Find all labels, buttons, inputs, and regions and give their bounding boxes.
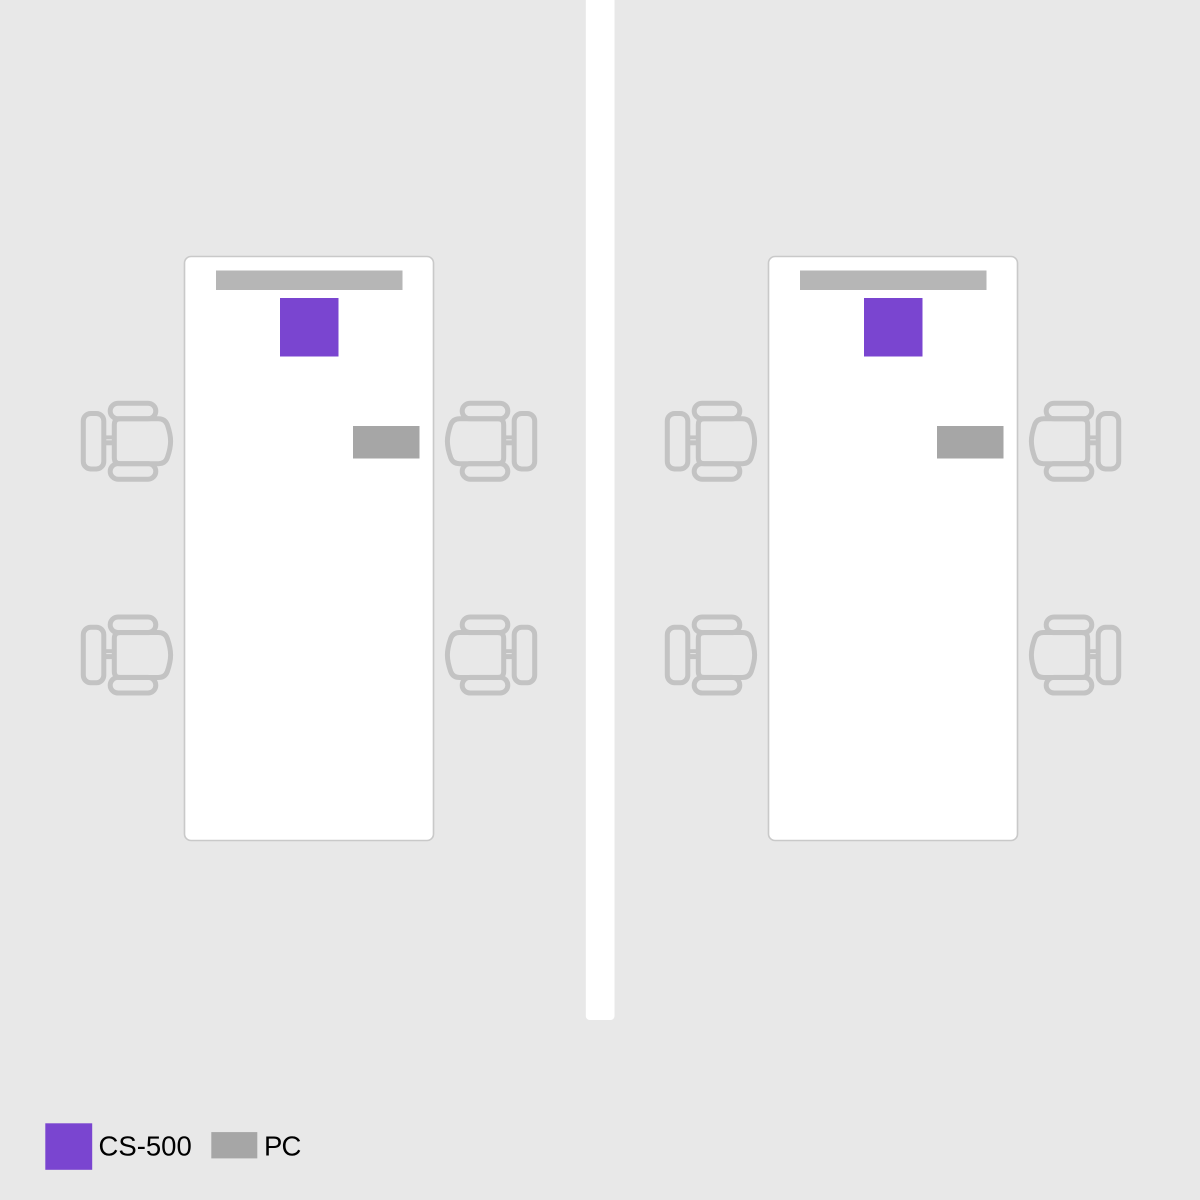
svg-text:PC: PC [264, 1130, 301, 1161]
svg-text:CS-500: CS-500 [99, 1130, 192, 1161]
